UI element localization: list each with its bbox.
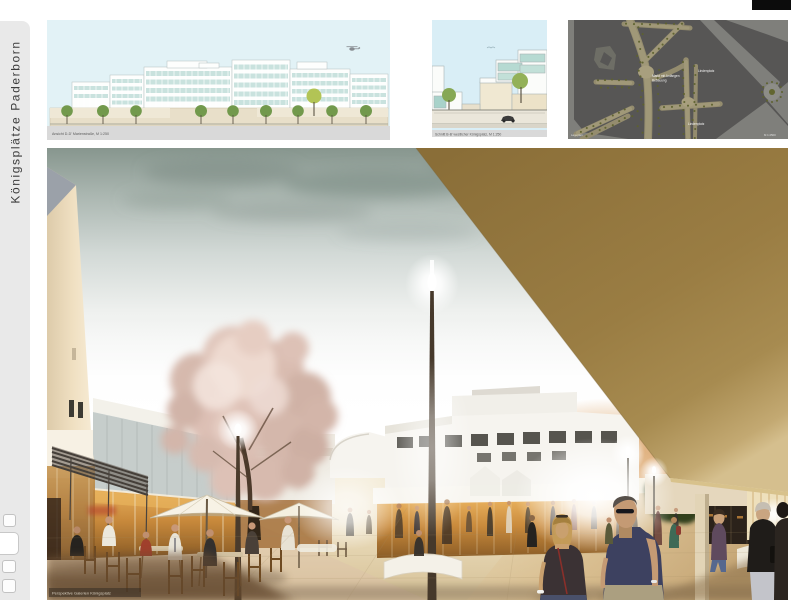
- svg-text:Lindenplatz: Lindenplatz: [698, 69, 715, 73]
- svg-text:Bebauung: Bebauung: [652, 79, 667, 83]
- svg-text:Perspektive Galerien Königspla: Perspektive Galerien Königsplatz: [52, 591, 111, 596]
- svg-text:Lindenplatz: Lindenplatz: [688, 122, 705, 126]
- svg-text:Schnitt B-B' westlicher König: Schnitt B-B' westlicher Königsplatz, M 1…: [435, 133, 501, 137]
- svg-text:Lageplan: Lageplan: [571, 133, 583, 137]
- svg-text:Markt mit Anfängen: Markt mit Anfängen: [652, 74, 680, 78]
- svg-text:M 1:2500: M 1:2500: [764, 133, 776, 137]
- svg-text:Ansicht D-D' Marienstraße, M: Ansicht D-D' Marienstraße, M 1:250: [52, 132, 109, 136]
